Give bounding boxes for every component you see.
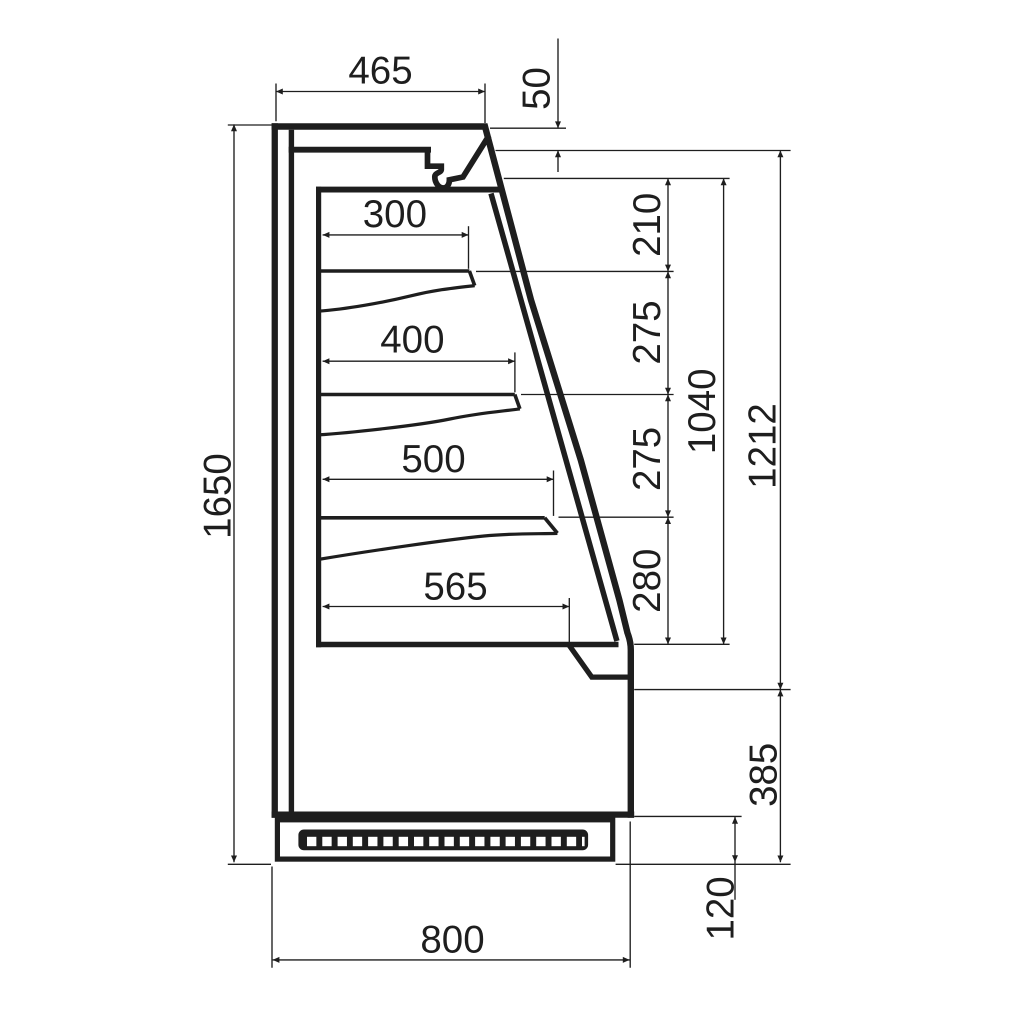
svg-text:280: 280: [626, 549, 669, 613]
svg-text:565: 565: [423, 566, 487, 609]
svg-text:1212: 1212: [742, 403, 785, 489]
svg-text:300: 300: [363, 193, 427, 236]
svg-text:400: 400: [380, 318, 444, 361]
svg-text:465: 465: [348, 49, 412, 92]
svg-text:50: 50: [516, 67, 559, 110]
svg-text:500: 500: [401, 438, 465, 481]
svg-text:385: 385: [742, 743, 785, 807]
svg-text:120: 120: [700, 876, 743, 940]
svg-text:210: 210: [626, 193, 669, 257]
svg-text:1040: 1040: [681, 368, 724, 454]
svg-text:275: 275: [626, 427, 669, 491]
svg-text:1650: 1650: [196, 453, 239, 539]
svg-text:800: 800: [420, 919, 484, 962]
svg-text:275: 275: [626, 300, 669, 364]
